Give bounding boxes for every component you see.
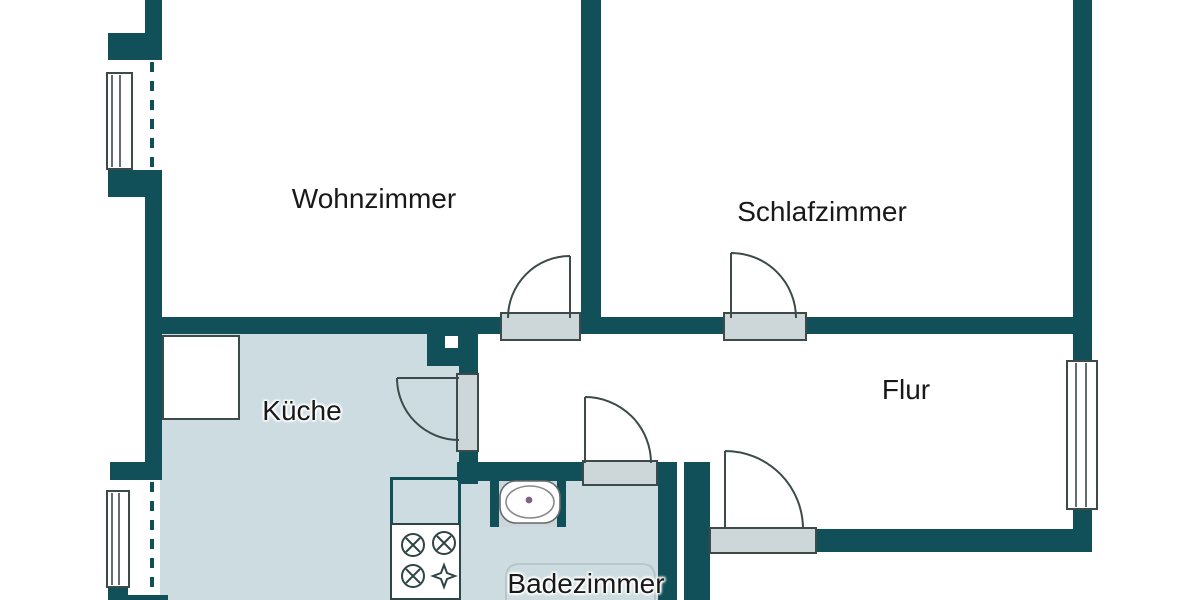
shaft-gap bbox=[677, 481, 684, 554]
door-sill-flur bbox=[709, 527, 817, 554]
wall bbox=[162, 317, 500, 334]
door-sill-badezimmer bbox=[582, 460, 658, 486]
wall bbox=[110, 462, 162, 480]
wall bbox=[1073, 510, 1092, 552]
room-label-kueche: Küche bbox=[262, 395, 341, 427]
wall bbox=[581, 0, 601, 334]
window-left-lower bbox=[106, 490, 130, 588]
wall bbox=[1073, 0, 1092, 360]
door-swing-schlafzimmer bbox=[731, 253, 796, 318]
door-sill-kueche bbox=[456, 373, 479, 452]
room-label-flur: Flur bbox=[882, 374, 930, 406]
wall bbox=[684, 462, 710, 600]
door-sill-wohnzimmer bbox=[500, 312, 581, 341]
washbasin-pedestal bbox=[490, 480, 566, 527]
kitchen-cupboard bbox=[162, 335, 240, 420]
wall bbox=[145, 170, 162, 462]
door-swing-flur bbox=[725, 451, 803, 529]
door-swing-badezimmer bbox=[585, 397, 651, 463]
wall bbox=[108, 33, 162, 60]
room-label-wohnzimmer: Wohnzimmer bbox=[292, 183, 456, 215]
window-right bbox=[1066, 360, 1098, 510]
wall bbox=[816, 529, 1073, 552]
wall bbox=[490, 481, 499, 527]
door-sill-schlafzimmer bbox=[723, 312, 807, 341]
room-label-schlafzimmer: Schlafzimmer bbox=[737, 196, 907, 228]
wall bbox=[108, 170, 162, 197]
door-swing-wohnzimmer bbox=[508, 256, 570, 318]
wall bbox=[457, 462, 582, 481]
wall-notch bbox=[445, 336, 458, 348]
floor-plan: Wohnzimmer Schlafzimmer Küche Flur Badez… bbox=[0, 0, 1200, 600]
wall bbox=[557, 481, 566, 527]
wall bbox=[601, 317, 723, 334]
room-label-badezimmer: Badezimmer bbox=[507, 568, 664, 600]
stove-icon bbox=[390, 523, 461, 600]
window-left-upper bbox=[106, 72, 133, 170]
wall bbox=[108, 588, 128, 600]
wall bbox=[807, 317, 1073, 334]
wall bbox=[128, 595, 168, 600]
